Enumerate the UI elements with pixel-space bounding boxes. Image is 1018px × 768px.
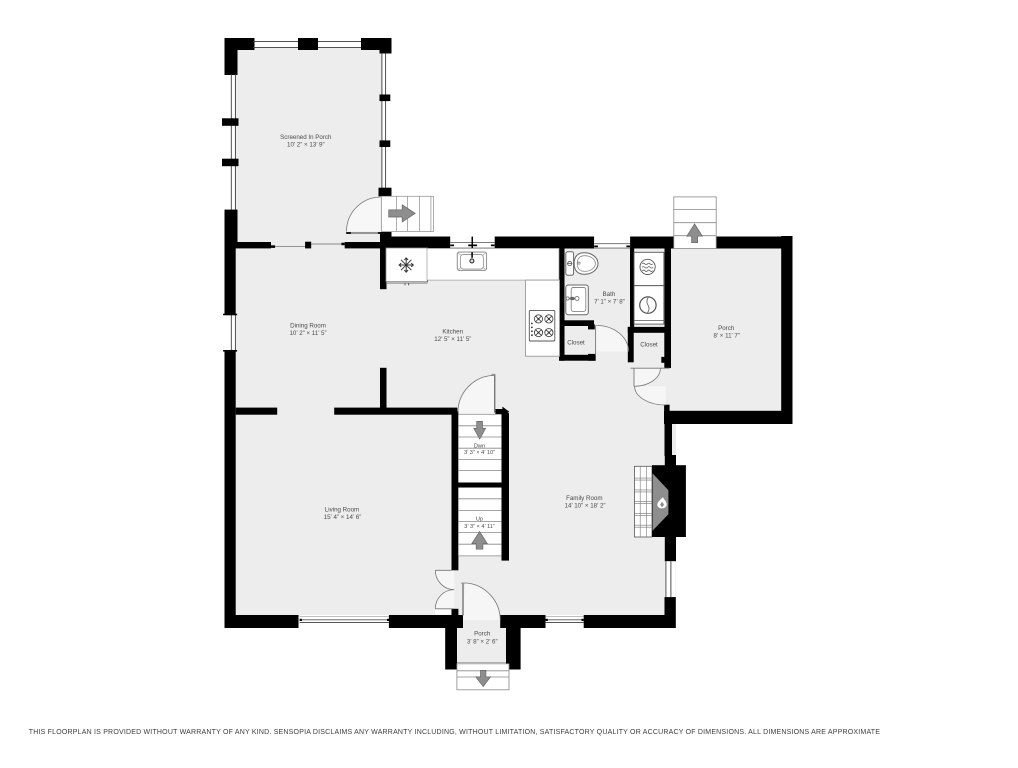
svg-text:Screened In Porch: Screened In Porch <box>280 134 332 141</box>
svg-text:15’ 4” × 14’ 6”: 15’ 4” × 14’ 6” <box>324 514 362 521</box>
svg-text:7’ 1” × 7’ 8”: 7’ 1” × 7’ 8” <box>594 299 625 306</box>
svg-text:Closet: Closet <box>640 342 658 349</box>
svg-text:Dwn: Dwn <box>474 444 485 450</box>
svg-text:THIS FLOORPLAN IS PROVIDED WIT: THIS FLOORPLAN IS PROVIDED WITHOUT WARRA… <box>29 729 880 736</box>
svg-text:Living Room: Living Room <box>325 506 359 513</box>
svg-text:14’ 10” × 18’ 2”: 14’ 10” × 18’ 2” <box>565 503 606 510</box>
svg-text:Closet: Closet <box>567 340 585 347</box>
svg-text:Porch: Porch <box>474 631 491 638</box>
svg-text:Family Room: Family Room <box>566 495 602 502</box>
svg-text:Dining Room: Dining Room <box>290 323 326 330</box>
svg-text:Bath: Bath <box>603 291 616 298</box>
svg-text:Up: Up <box>476 517 483 523</box>
svg-text:Porch: Porch <box>718 325 735 332</box>
svg-text:8’ × 11’ 7”: 8’ × 11’ 7” <box>713 333 739 340</box>
svg-text:3’ 3” × 4’ 11”: 3’ 3” × 4’ 11” <box>464 524 495 530</box>
svg-text:10’ 2” × 13’ 9”: 10’ 2” × 13’ 9” <box>287 142 325 149</box>
svg-text:12’ 5” × 11’ 5”: 12’ 5” × 11’ 5” <box>434 336 471 343</box>
svg-text:10’ 2” × 11’ 5”: 10’ 2” × 11’ 5” <box>289 330 326 337</box>
svg-text:3’ 8” × 2’ 6”: 3’ 8” × 2’ 6” <box>467 639 498 646</box>
svg-text:3’ 3” × 4’ 10”: 3’ 3” × 4’ 10” <box>464 450 495 456</box>
svg-text:Kitchen: Kitchen <box>442 329 463 336</box>
